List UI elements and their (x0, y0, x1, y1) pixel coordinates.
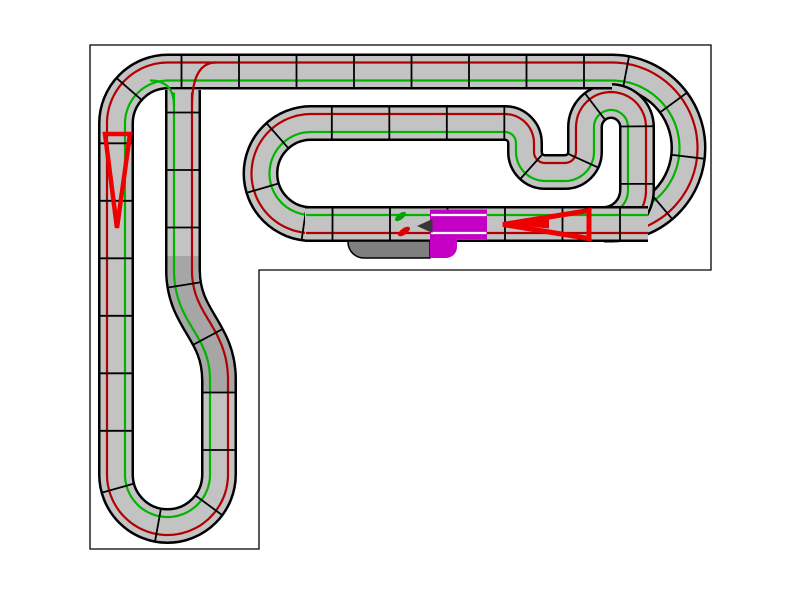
track-editor-canvas (0, 0, 800, 600)
track-layout-svg (0, 0, 800, 600)
pit-lane-piece[interactable] (348, 241, 430, 258)
